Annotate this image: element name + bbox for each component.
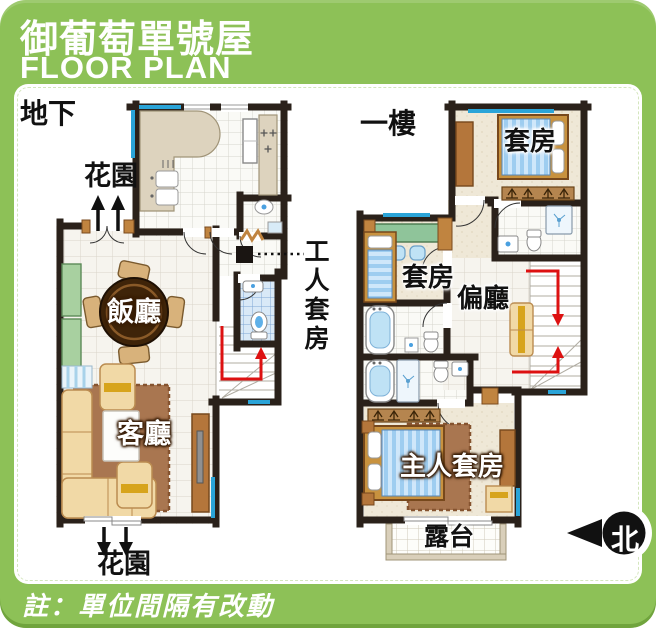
page-card: 御葡萄單號屋 FLOOR PLAN [0, 0, 656, 628]
suite-left-label: 套房 [402, 264, 454, 290]
dining-room-label: 飯廳 [92, 299, 176, 326]
ground-floor-label: 地下 [20, 100, 76, 128]
garden-top-label: 花園 [84, 163, 138, 190]
side-hall-label: 偏廳 [457, 285, 509, 311]
footnote: 註：單位間隔有改動 [22, 586, 274, 623]
page-subtitle: FLOOR PLAN [20, 50, 232, 86]
living-room-label: 客廳 [102, 421, 186, 448]
north-label: 北 [610, 518, 640, 558]
terrace-label: 露台 [424, 525, 474, 550]
master-suite-label: 主人套房 [396, 453, 508, 479]
servant-suite-label: 工人套房 [302, 238, 327, 354]
suite-top-label: 套房 [504, 128, 556, 154]
garden-bottom-label: 花園 [97, 551, 151, 578]
first-floor-label: 一樓 [360, 110, 416, 138]
